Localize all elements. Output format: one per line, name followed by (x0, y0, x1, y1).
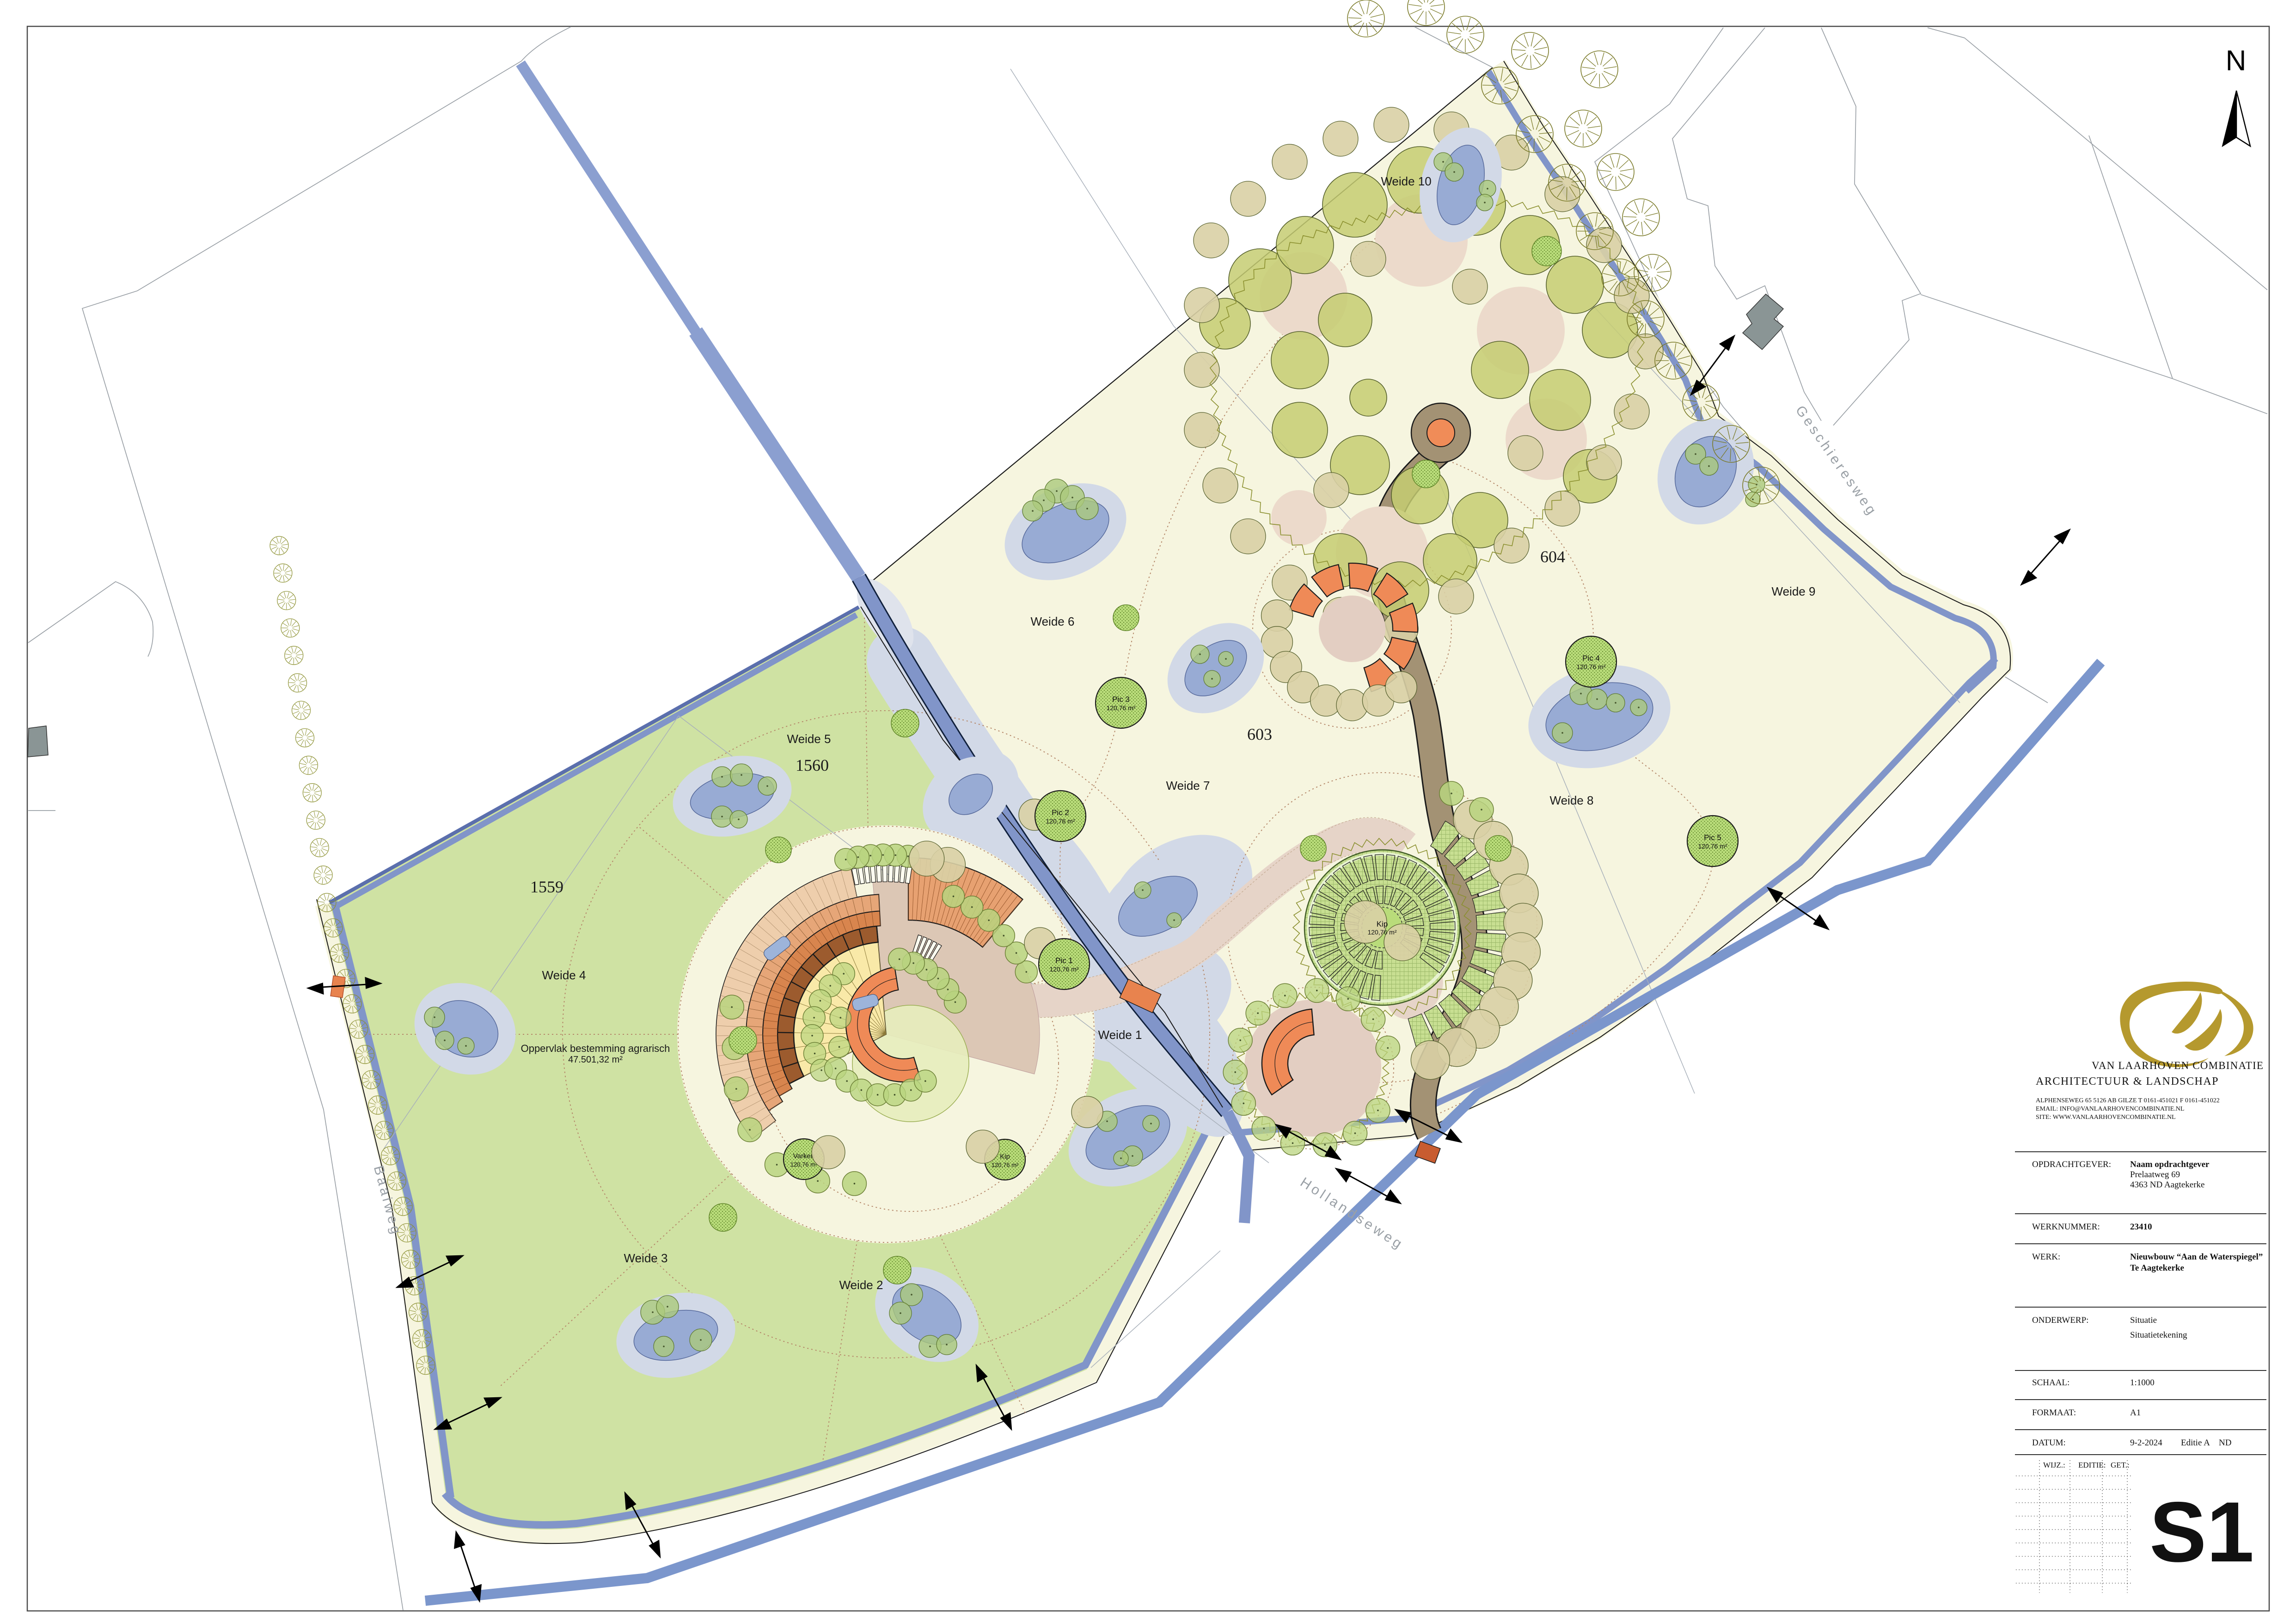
svg-text:23410: 23410 (2130, 1222, 2152, 1232)
svg-text:120,76 m²: 120,76 m² (992, 1161, 1019, 1168)
svg-text:N: N (2226, 45, 2247, 77)
svg-text:4363 ND Aagtekerke: 4363 ND Aagtekerke (2130, 1180, 2204, 1190)
svg-text:120,76 m²: 120,76 m² (790, 1161, 818, 1168)
svg-text:SITE: WWW.VANLAARHOVENCOMBINAT: SITE: WWW.VANLAARHOVENCOMBINATIE.NL (2036, 1114, 2176, 1121)
svg-text:Situatie: Situatie (2130, 1315, 2157, 1325)
svg-text:EDITIE:: EDITIE: (2078, 1461, 2106, 1469)
svg-text:Pic 4: Pic 4 (1582, 654, 1600, 663)
svg-text:ND: ND (2219, 1438, 2231, 1448)
svg-text:EMAIL: INFO@VANLAARHOVENCOMBIN: EMAIL: INFO@VANLAARHOVENCOMBINATIE.NL (2036, 1106, 2184, 1112)
svg-text:WERKNUMMER:: WERKNUMMER: (2032, 1222, 2100, 1232)
svg-text:Weide 6: Weide 6 (1031, 614, 1075, 628)
svg-text:Weide 1: Weide 1 (1098, 1028, 1142, 1042)
svg-text:Nieuwbouw “Aan de Waterspiegel: Nieuwbouw “Aan de Waterspiegel” (2130, 1252, 2263, 1262)
svg-text:1560: 1560 (796, 756, 829, 774)
svg-text:Weide 9: Weide 9 (1772, 584, 1816, 598)
svg-text:GET.:: GET.: (2111, 1461, 2130, 1469)
svg-text:Te Aagtekerke: Te Aagtekerke (2130, 1263, 2184, 1273)
svg-text:47.501,32 m²: 47.501,32 m² (568, 1055, 623, 1065)
svg-text:ARCHITECTUUR & LANDSCHAP: ARCHITECTUUR & LANDSCHAP (2036, 1075, 2219, 1087)
svg-text:SCHAAL:: SCHAAL: (2032, 1378, 2069, 1388)
svg-text:WERK:: WERK: (2032, 1252, 2060, 1262)
svg-text:120,76 m²: 120,76 m² (1046, 817, 1075, 825)
svg-text:A1: A1 (2130, 1408, 2141, 1418)
svg-text:Situatietekening: Situatietekening (2130, 1330, 2187, 1340)
svg-text:120,76 m²: 120,76 m² (1576, 663, 1605, 670)
svg-text:OPDRACHTGEVER:: OPDRACHTGEVER: (2032, 1160, 2111, 1169)
svg-text:FORMAAT:: FORMAAT: (2032, 1408, 2076, 1418)
svg-text:Weide 3: Weide 3 (624, 1251, 668, 1265)
svg-text:DATUM:: DATUM: (2032, 1438, 2066, 1448)
svg-text:S1: S1 (2149, 1485, 2254, 1580)
svg-text:603: 603 (1247, 725, 1272, 743)
svg-text:Pic 5: Pic 5 (1704, 833, 1721, 842)
svg-text:120,76 m²: 120,76 m² (1698, 842, 1727, 850)
svg-text:WIJZ.:: WIJZ.: (2043, 1461, 2065, 1469)
svg-text:Editie A: Editie A (2181, 1438, 2210, 1448)
svg-text:Pic 1: Pic 1 (1055, 956, 1073, 965)
svg-text:1:1000: 1:1000 (2130, 1378, 2155, 1388)
svg-text:Kip: Kip (1377, 920, 1388, 928)
svg-text:ONDERWERP:: ONDERWERP: (2032, 1315, 2088, 1325)
svg-text:Weide 4: Weide 4 (542, 968, 586, 982)
svg-text:Weide 7: Weide 7 (1166, 779, 1210, 793)
svg-text:Kip: Kip (1000, 1153, 1010, 1161)
svg-text:Varken: Varken (793, 1152, 814, 1160)
svg-text:Oppervlak bestemming agrarisch: Oppervlak bestemming agrarisch (521, 1043, 670, 1054)
svg-text:604: 604 (1540, 547, 1565, 566)
svg-text:120,76 m²: 120,76 m² (1049, 965, 1078, 973)
svg-text:Naam opdrachtgever: Naam opdrachtgever (2130, 1160, 2210, 1169)
svg-text:1559: 1559 (530, 878, 563, 896)
svg-text:Pic 2: Pic 2 (1052, 808, 1069, 817)
svg-text:Weide 5: Weide 5 (787, 732, 831, 746)
svg-text:VAN LAARHOVEN COMBINATIE: VAN LAARHOVEN COMBINATIE (2092, 1060, 2264, 1071)
svg-text:9-2-2024: 9-2-2024 (2130, 1438, 2162, 1448)
svg-text:Prelaatweg 69: Prelaatweg 69 (2130, 1170, 2180, 1180)
svg-text:Pic 3: Pic 3 (1112, 695, 1130, 704)
svg-text:Weide 10: Weide 10 (1381, 174, 1431, 188)
svg-text:120,76 m²: 120,76 m² (1367, 928, 1396, 936)
svg-text:ALPHENSEWEG 65 5126 AB GILZE: ALPHENSEWEG 65 5126 AB GILZE T 0161-4510… (2036, 1097, 2220, 1104)
svg-text:Weide 8: Weide 8 (1550, 793, 1594, 807)
svg-text:120,76 m²: 120,76 m² (1106, 704, 1135, 712)
svg-text:Weide 2: Weide 2 (839, 1278, 883, 1292)
